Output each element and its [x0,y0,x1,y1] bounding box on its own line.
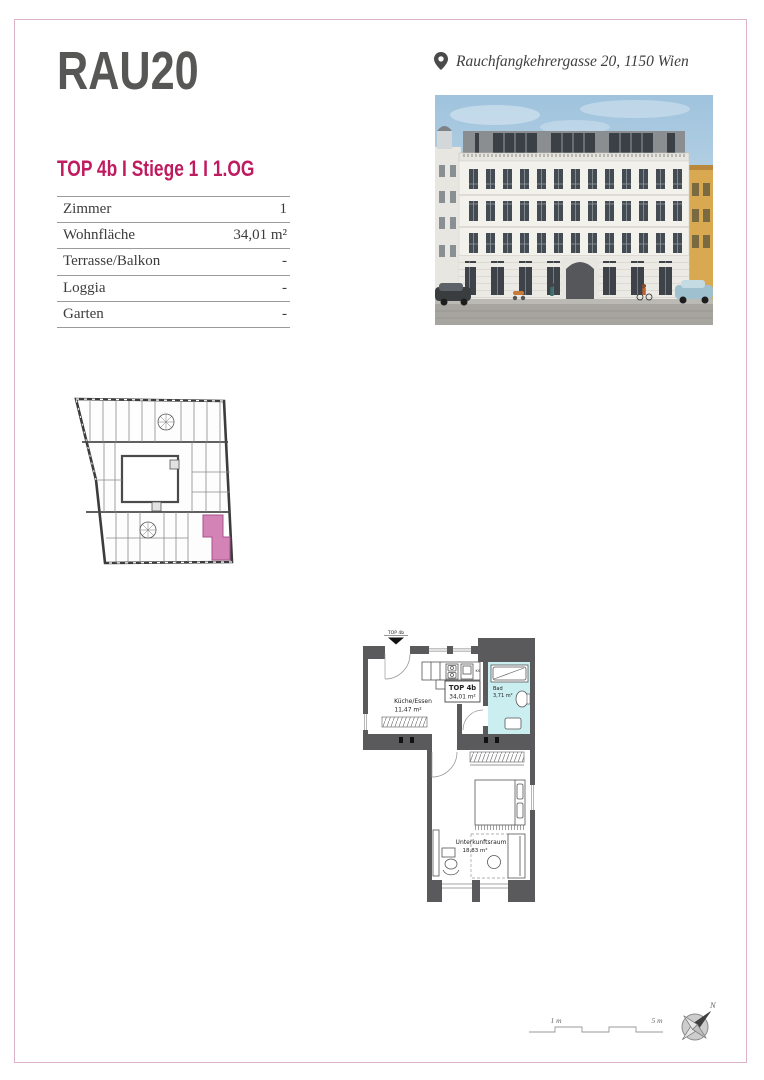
table-row: Zimmer 1 [57,196,290,222]
appliance-label-ks: KS [476,669,481,673]
scale-bar: 1 m 5 m [527,1014,667,1040]
stairwell-top [158,414,174,430]
table-row: Loggia - [57,275,290,301]
brand-logo: RAU20 [57,44,199,98]
room-area-bad: 3,71 m² [493,693,513,699]
spec-value: - [282,280,287,297]
spec-label: Zimmer [63,201,111,218]
entrance-marker: TOP 4b [384,630,408,645]
room-area-kitchen: 11,47 m² [394,707,422,714]
door-markers [399,737,499,743]
spec-value: 1 [280,201,288,218]
spec-value: - [282,253,287,270]
compass-north-label: N [709,1000,717,1010]
spec-table: Zimmer 1 Wohnfläche 34,01 m² Terrasse/Ba… [57,196,290,328]
compass-rose: N [674,996,722,1048]
bedroom-furniture [433,780,525,878]
unit-label-box: TOP 4b 34,01 m² [445,681,480,702]
spec-label: Garten [63,306,104,323]
room-name-kitchen: Küche/Essen [394,698,432,705]
unit-box-label: TOP 4b [449,684,476,692]
spec-label: Wohnfläche [63,227,135,244]
table-row: Garten - [57,301,290,328]
room-name-bad: Bad [493,686,503,692]
address-text: Rauchfangkehrergasse 20, 1150 Wien [456,52,689,71]
spec-label: Terrasse/Balkon [63,253,160,270]
location-pin-icon [434,52,448,70]
scale-label-1m: 1 m [550,1016,562,1025]
room-area-unterkunftsraum: 18,83 m² [462,847,487,854]
address-line: Rauchfangkehrergasse 20, 1150 Wien [434,52,689,71]
room-name-unterkunftsraum: Unterkunftsraum [456,839,507,846]
expose-page: RAU20 TOP 4b I Stiege 1 I 1.OG Zimmer 1 … [0,0,764,1080]
entrance-label: TOP 4b [387,630,404,636]
building-photo [435,95,713,325]
spec-value: - [282,306,287,323]
unit-title: TOP 4b I Stiege 1 I 1.OG [57,156,254,182]
unit-box-area: 34,01 m² [449,694,475,701]
site-plan [70,392,240,572]
floor-plan: TOP 4b Küche/Essen 11,47 m² TOP 4b 34,01… [357,622,553,914]
spec-value: 34,01 m² [233,227,287,244]
spec-label: Loggia [63,280,106,297]
table-row: Terrasse/Balkon - [57,248,290,274]
scale-label-5m: 5 m [651,1016,663,1025]
table-row: Wohnfläche 34,01 m² [57,222,290,248]
stairwell-bottom [140,522,156,538]
